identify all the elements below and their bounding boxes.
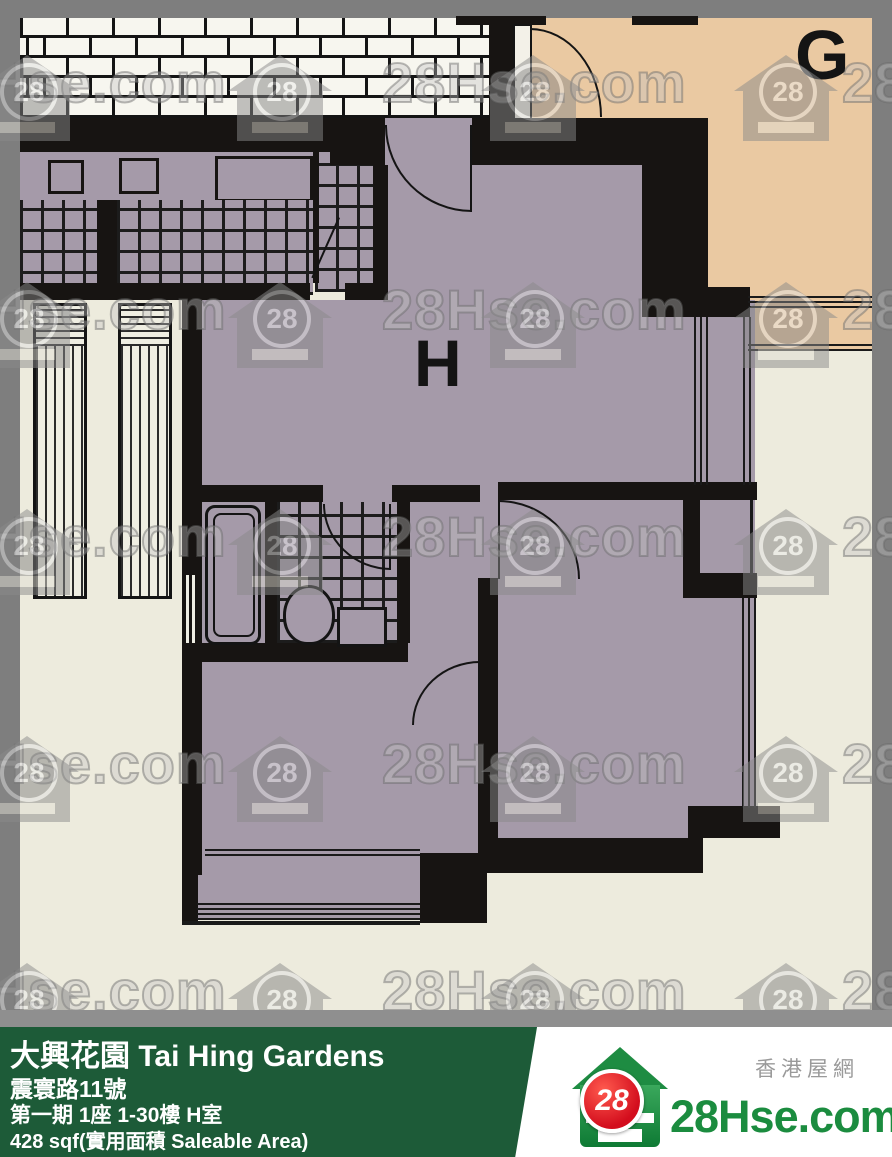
unit-h-label: H	[414, 330, 462, 396]
logo-site-name: 28Hse.com	[670, 1091, 892, 1143]
wall-segment	[642, 287, 750, 317]
bathtub-inner	[213, 513, 255, 637]
wall-segment	[20, 283, 310, 300]
wall-vent-line	[192, 575, 195, 643]
scan-edge-strip	[0, 1010, 892, 1027]
window-line	[749, 317, 751, 485]
window-line	[694, 317, 696, 485]
window-line	[754, 598, 756, 808]
property-saleable-area: 428 sqf(實用面積 Saleable Area)	[10, 1125, 308, 1154]
stair-shaft-right	[118, 303, 172, 599]
wall-segment	[397, 502, 410, 643]
balcony-slider-line	[205, 854, 420, 856]
wall-segment	[498, 482, 757, 500]
window-line	[748, 349, 872, 351]
adjacent-window-box	[119, 158, 159, 194]
window-line	[197, 918, 420, 920]
balcony-slider-line	[205, 849, 420, 851]
window-line	[742, 598, 744, 808]
window-line	[197, 908, 420, 910]
logo-28-badge: 28	[580, 1069, 644, 1133]
wall-segment	[688, 806, 780, 838]
stair-treads	[36, 306, 84, 346]
wall-segment	[182, 921, 420, 925]
wall-segment	[683, 573, 757, 598]
toilet	[283, 585, 335, 645]
brick-row	[20, 98, 497, 118]
window-line	[197, 913, 420, 915]
adjacent-window-box	[215, 156, 313, 202]
property-title: 大興花園 Tai Hing Gardens	[10, 1031, 385, 1075]
cream-notch	[703, 838, 780, 873]
wall-segment	[182, 872, 198, 923]
door-opening	[323, 485, 392, 502]
wall-segment	[632, 16, 698, 25]
site-logo: 28 28Hse.com 香港屋網	[570, 1045, 880, 1155]
adjacent-tiled-floor	[20, 200, 97, 295]
brick-wall	[20, 18, 497, 118]
window-line	[748, 306, 872, 308]
stair-treads	[121, 306, 169, 346]
wall-segment	[642, 118, 708, 293]
wall-segment	[345, 283, 388, 300]
wall-segment	[489, 18, 513, 118]
window-line	[748, 301, 872, 303]
info-bar: 大興花園 Tai Hing Gardens 震寰路11號 第一期 1座 1-30…	[0, 1027, 892, 1157]
wall-segment	[683, 500, 700, 577]
unit-g-label: G	[795, 20, 849, 90]
window-line	[748, 296, 872, 298]
unit-h-balcony	[197, 855, 420, 920]
logo-site-name-cn: 香港屋網	[755, 1053, 859, 1083]
wall-segment	[750, 500, 753, 575]
sink	[337, 607, 387, 647]
wall-segment	[373, 152, 388, 300]
brick-row	[20, 78, 497, 98]
brick-row	[20, 18, 497, 38]
wall-segment	[420, 853, 487, 923]
window-line	[748, 344, 872, 346]
wall-segment	[97, 200, 117, 295]
g-door-leaf	[513, 24, 532, 120]
wall-segment	[265, 502, 277, 643]
wall-segment	[487, 838, 703, 873]
wall-segment	[20, 118, 330, 152]
window-line	[197, 903, 420, 905]
wall-segment	[456, 16, 546, 25]
floor-plan: H G	[0, 0, 892, 1157]
door-opening	[408, 643, 478, 662]
stair-shaft-left	[33, 303, 87, 599]
window-line	[700, 317, 702, 485]
brick-row	[20, 38, 497, 58]
page: { "plan": { "unit_h_label": "H", "unit_g…	[0, 0, 892, 1157]
window-line	[748, 598, 750, 808]
logo-house-icon: 28	[572, 1047, 668, 1149]
wall-vent-line	[186, 575, 189, 643]
brick-row	[20, 58, 497, 78]
adjacent-tiled-floor	[117, 200, 313, 295]
window-line	[743, 317, 745, 485]
window-line	[706, 317, 708, 485]
wall-segment	[478, 578, 498, 858]
adjacent-window-box	[48, 160, 84, 194]
